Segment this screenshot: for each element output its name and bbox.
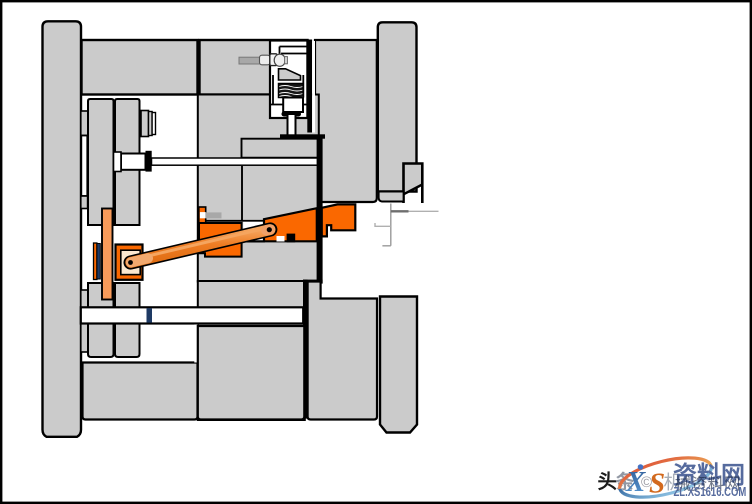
svg-text:ZL.XS1616.COM: ZL.XS1616.COM [674, 486, 747, 500]
svg-text:头: 头 [598, 471, 618, 493]
